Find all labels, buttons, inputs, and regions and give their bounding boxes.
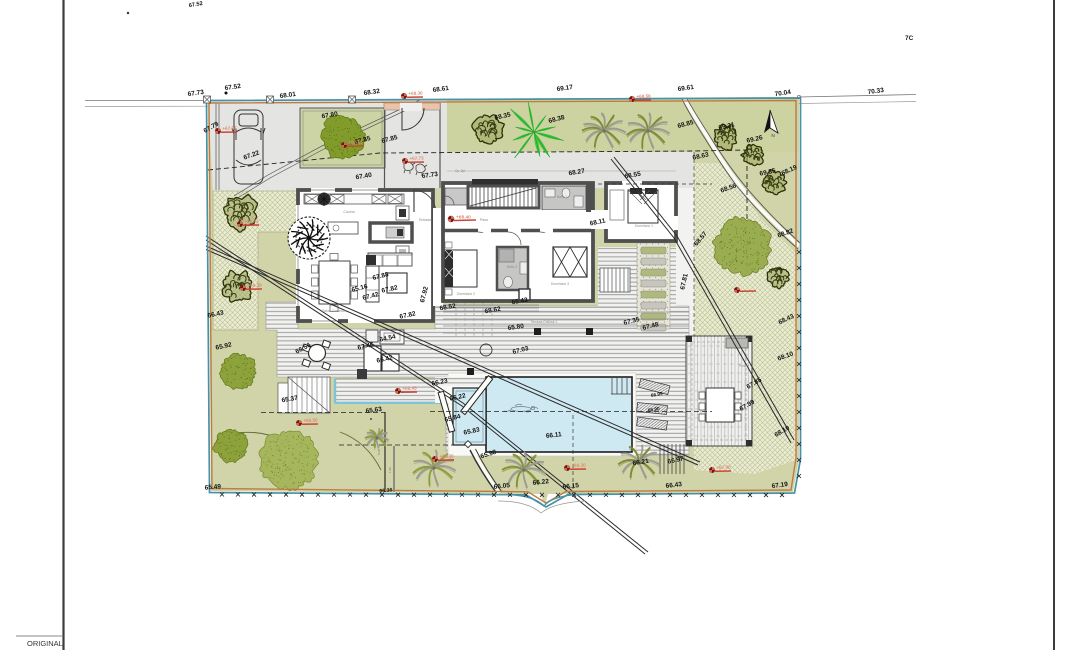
svg-text:66.36: 66.36 bbox=[379, 487, 393, 494]
svg-text:Salon-Comedor: Salon-Comedor bbox=[322, 309, 347, 313]
svg-text:+66.50: +66.50 bbox=[303, 417, 318, 423]
svg-text:7C: 7C bbox=[905, 35, 914, 42]
svg-text:+67.05: +67.05 bbox=[222, 125, 237, 131]
svg-text:+66.45: +66.45 bbox=[402, 385, 417, 391]
svg-text:Dormitorio 1: Dormitorio 1 bbox=[635, 224, 653, 228]
svg-text:+67.65: +67.65 bbox=[348, 139, 363, 145]
svg-text:+68.40: +68.40 bbox=[456, 215, 471, 221]
svg-text:ORIGINAL: ORIGINAL bbox=[27, 639, 63, 648]
svg-text:5.00: 5.00 bbox=[377, 449, 381, 455]
svg-text:Dormitorio 2: Dormitorio 2 bbox=[457, 292, 475, 296]
svg-text:Porche: Porche bbox=[739, 364, 749, 368]
svg-text:+66.30: +66.30 bbox=[571, 462, 586, 468]
svg-text:65.49: 65.49 bbox=[204, 483, 221, 491]
svg-text:Baño 1: Baño 1 bbox=[557, 195, 567, 199]
svg-text:+66.43: +66.43 bbox=[244, 218, 259, 224]
svg-text:Paso: Paso bbox=[480, 218, 488, 222]
svg-text:+68.58: +68.58 bbox=[636, 93, 651, 99]
svg-text:Cp. 2pl: Cp. 2pl bbox=[455, 169, 465, 173]
svg-text:+66.39: +66.39 bbox=[247, 282, 262, 288]
svg-text:Cocina: Cocina bbox=[343, 210, 354, 214]
svg-text:+66.30: +66.30 bbox=[439, 453, 454, 459]
svg-text:Baño 3: Baño 3 bbox=[507, 265, 517, 269]
svg-text:+68.30: +68.30 bbox=[408, 90, 423, 96]
svg-text:N: N bbox=[771, 133, 774, 138]
svg-text:Terraza-Chillout 1: Terraza-Chillout 1 bbox=[531, 320, 558, 324]
svg-text:Entrada: Entrada bbox=[419, 218, 431, 222]
svg-text:1.50: 1.50 bbox=[388, 467, 392, 473]
svg-text:+67.73: +67.73 bbox=[409, 155, 424, 161]
svg-text:Dormitorio 3: Dormitorio 3 bbox=[551, 282, 569, 286]
svg-text:+67.00: +67.00 bbox=[716, 464, 731, 470]
